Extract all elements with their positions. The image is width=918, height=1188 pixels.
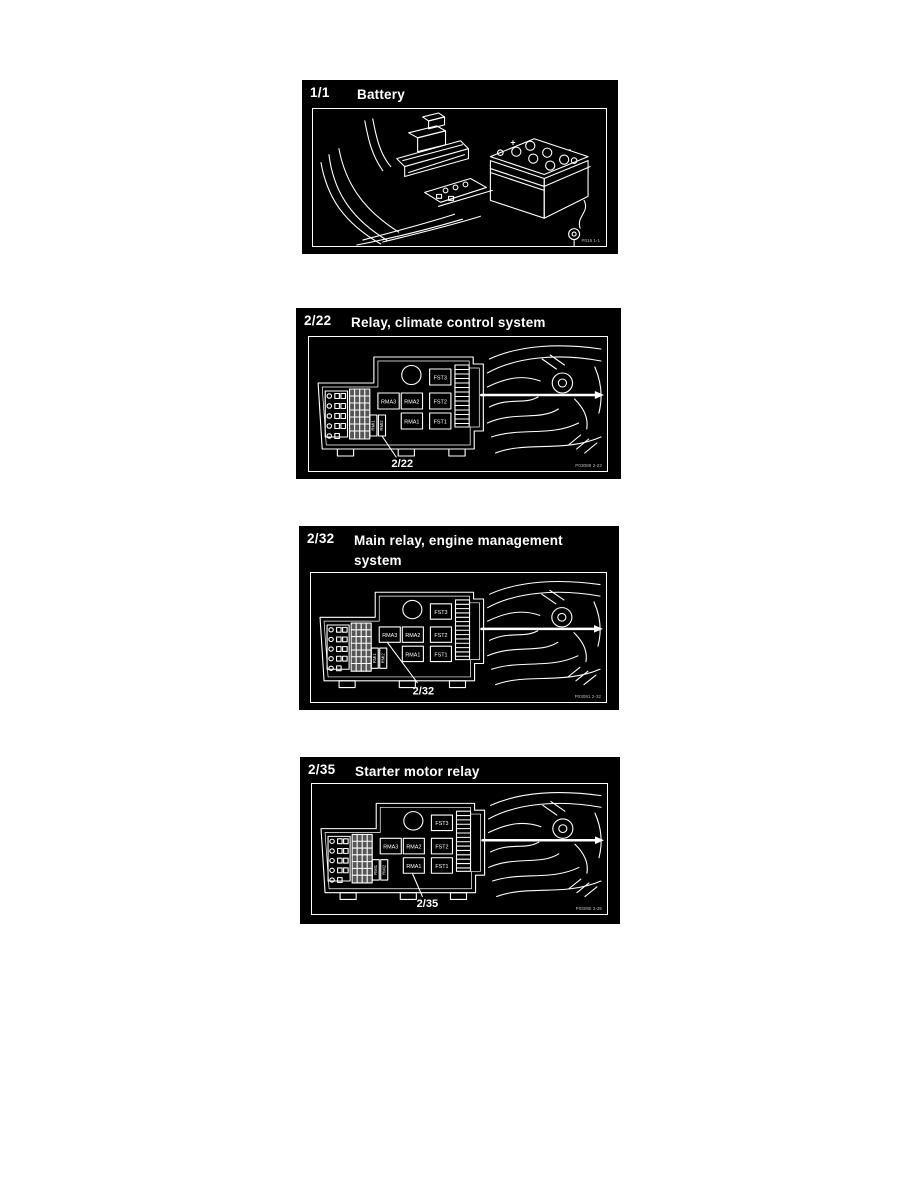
callout-label: 2/22 — [391, 458, 413, 470]
illustration-frame: RMI1 RMI2 RMA3 RMA2 FST3 FST2 RMA1 FS — [310, 572, 607, 703]
illustration-frame: + - P016 1-1 — [312, 108, 607, 247]
callout: 2/35 — [412, 873, 438, 910]
component-name: Main relay, engine management system — [354, 531, 610, 570]
figure-caption: P03085 2-35 — [576, 906, 603, 911]
illustration-frame: RMI1 RMI2 RMA3 RMA2 FST3 FST2 RMA1 FS — [308, 336, 608, 472]
battery-minus-mark: - — [568, 145, 571, 155]
relay-pos-rmi1: RMI1 — [372, 653, 377, 664]
relay-fuse-positions: RMA3 RMA2 FST3 FST2 RMA1 FST1 — [380, 815, 452, 873]
fuse-pos-fst2: FST2 — [435, 845, 448, 851]
mini-fuse-grid — [350, 389, 370, 439]
manual-page: 1/1 Battery — [0, 0, 918, 1188]
battery-location-diagram: + - P016 1-1 — [313, 109, 606, 246]
figure-panel-relay-2-32: 2/32 Main relay, engine management syste… — [299, 526, 619, 710]
relay-pos-rma2: RMA2 — [406, 845, 421, 851]
relay-box-diagram: RMI1 RMI2 RMA3 RMA2 FST3 FST2 RMA1 FS — [312, 784, 607, 914]
connector-block — [325, 391, 347, 439]
relay-pos-rmi1: RMI1 — [373, 864, 378, 875]
relay-pos-rmi1: RMI1 — [370, 420, 375, 431]
component-name: Battery — [357, 85, 405, 105]
relay-pos-rma1: RMA1 — [404, 420, 419, 426]
battery-illustration — [490, 139, 590, 246]
relay-pos-rma1: RMA1 — [405, 652, 420, 658]
figure-caption: P016 1-1 — [581, 238, 600, 243]
component-ref: 1/1 — [310, 85, 357, 100]
component-ref: 2/35 — [308, 762, 355, 777]
engine-bay-illustration — [488, 581, 600, 684]
micro-relay-positions: RMI1 RMI2 — [370, 415, 386, 436]
relay-pos-rma3: RMA3 — [381, 400, 396, 406]
fuse-pos-fst2: FST2 — [434, 400, 447, 406]
car-front-illustration — [321, 113, 486, 245]
fuse-pos-fst1: FST1 — [434, 652, 447, 658]
relay-socket-circle — [404, 812, 423, 830]
connector-block — [328, 836, 350, 882]
battery-plus-mark: + — [510, 138, 515, 148]
relay-pos-rma3: RMA3 — [383, 845, 398, 851]
mini-fuse-grid — [352, 834, 372, 883]
relay-pos-rma2: RMA2 — [404, 400, 419, 406]
relay-socket-circle — [402, 366, 421, 385]
relay-pos-rmi2: RMI2 — [380, 653, 385, 664]
relay-fuse-positions: RMA3 RMA2 FST3 FST2 RMA1 FST1 — [378, 369, 451, 429]
relay-pos-rma1: RMA1 — [406, 864, 421, 870]
relay-pos-rma2: RMA2 — [405, 633, 420, 639]
relay-pos-rmi2: RMI2 — [379, 420, 384, 431]
fuse-pos-fst3: FST3 — [434, 610, 447, 616]
relay-box-diagram: RMI1 RMI2 RMA3 RMA2 FST3 FST2 RMA1 FS — [309, 337, 607, 471]
figure-title: 2/32 Main relay, engine management syste… — [307, 531, 610, 570]
callout-label: 2/35 — [417, 898, 438, 910]
component-name: Relay, climate control system — [351, 313, 546, 333]
fuse-pos-fst1: FST1 — [435, 864, 448, 870]
fuse-strip-ladder — [455, 365, 469, 427]
callout: 2/32 — [387, 642, 434, 697]
component-ref: 2/32 — [307, 531, 354, 546]
fuse-strip-ladder — [456, 811, 470, 871]
figure-title: 1/1 Battery — [310, 85, 405, 105]
relay-pos-rmi2: RMI2 — [381, 864, 386, 875]
relay-socket-circle — [403, 600, 422, 618]
figure-panel-relay-2-35: 2/35 Starter motor relay — [300, 757, 620, 924]
micro-relay-positions: RMI1 RMI2 — [372, 860, 388, 880]
connector-block — [327, 625, 349, 671]
relay-pos-rma3: RMA3 — [382, 633, 397, 639]
location-pointer — [482, 625, 603, 633]
fuse-pos-fst3: FST3 — [434, 376, 447, 382]
figure-panel-battery: 1/1 Battery — [302, 80, 618, 254]
micro-relay-positions: RMI1 RMI2 — [371, 648, 387, 668]
relay-box-diagram: RMI1 RMI2 RMA3 RMA2 FST3 FST2 RMA1 FS — [311, 573, 606, 702]
figure-caption: P03088 2-22 — [575, 463, 602, 468]
fuse-pos-fst1: FST1 — [434, 420, 447, 426]
fuse-pos-fst2: FST2 — [434, 633, 447, 639]
fuse-strip-ladder — [455, 600, 469, 660]
location-pointer — [481, 391, 604, 399]
fuse-pos-fst3: FST3 — [435, 821, 448, 827]
location-pointer — [483, 836, 604, 844]
figure-title: 2/22 Relay, climate control system — [304, 313, 546, 333]
callout: 2/22 — [382, 436, 413, 470]
relay-fuse-positions: RMA3 RMA2 FST3 FST2 RMA1 FST1 — [379, 604, 451, 662]
engine-bay-illustration — [487, 346, 601, 453]
figure-panel-relay-2-22: 2/22 Relay, climate control system — [296, 308, 621, 479]
figure-title: 2/35 Starter motor relay — [308, 762, 480, 782]
component-name: Starter motor relay — [355, 762, 480, 782]
figure-caption: P03081 2-32 — [575, 694, 602, 699]
mini-fuse-grid — [351, 623, 371, 671]
component-ref: 2/22 — [304, 313, 351, 328]
illustration-frame: RMI1 RMI2 RMA3 RMA2 FST3 FST2 RMA1 FS — [311, 783, 608, 915]
engine-bay-illustration — [489, 793, 601, 897]
callout-label: 2/32 — [413, 685, 434, 697]
